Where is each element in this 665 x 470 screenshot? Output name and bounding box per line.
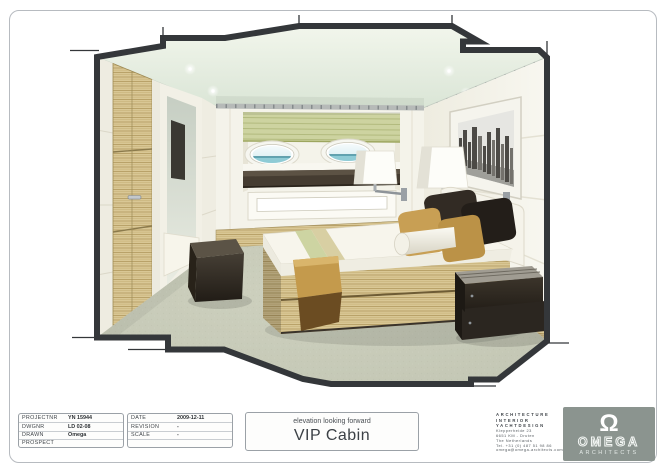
field-label: PROJECTNR xyxy=(22,415,68,421)
logo-subtitle: ARCHITECTS xyxy=(579,450,638,456)
field-label: REVISION xyxy=(131,424,177,430)
drawing-title: VIP Cabin xyxy=(294,427,370,445)
field-value: - xyxy=(177,432,179,438)
firm-line: omega@omega-architects.com xyxy=(496,448,562,453)
field-value: Omega xyxy=(68,432,86,438)
field-label: SCALE xyxy=(131,432,177,438)
table-row xyxy=(128,439,232,447)
drawing-sheet: PROJECTNR YN 15944 DWGNR LD 02-08 DRAWN … xyxy=(0,0,665,470)
lit-niche xyxy=(248,191,396,221)
omega-architects-logo: Ω OMEGA ARCHITECTS xyxy=(563,407,655,461)
table-row: DWGNR LD 02-08 xyxy=(19,422,123,430)
field-value: 2009-12-11 xyxy=(177,415,204,421)
table-row: REVISION - xyxy=(128,422,232,430)
door-handle xyxy=(128,196,141,200)
logo-name: OMEGA xyxy=(578,435,640,449)
table-row: DRAWN Omega xyxy=(19,431,123,439)
field-label: DWGNR xyxy=(22,424,68,430)
tv-panel xyxy=(171,120,185,180)
drawing-title-box: elevation looking forward VIP Cabin xyxy=(245,412,419,451)
table-row: SCALE - xyxy=(128,431,232,439)
vip-cabin-rendering xyxy=(0,0,665,410)
roman-blind xyxy=(243,112,400,142)
drawing-subtitle: elevation looking forward xyxy=(293,418,370,425)
firm-address-block: ARCHITECTURE INTERIOR YACHTDESIGN Kleppe… xyxy=(496,412,562,453)
table-row: DATE 2009-12-11 xyxy=(128,414,232,422)
cabin-door xyxy=(113,64,152,332)
field-value: - xyxy=(177,424,179,430)
table-row: PROJECTNR YN 15944 xyxy=(19,414,123,422)
omega-symbol-icon: Ω xyxy=(599,413,618,435)
field-value: LD 02-08 xyxy=(68,424,90,430)
field-label: DRAWN xyxy=(22,432,68,438)
project-info-table: PROJECTNR YN 15944 DWGNR LD 02-08 DRAWN … xyxy=(18,413,124,448)
date-info-table: DATE 2009-12-11 REVISION - SCALE - xyxy=(127,413,233,448)
nightstand xyxy=(455,266,548,347)
field-value: YN 15944 xyxy=(68,415,92,421)
field-label: DATE xyxy=(131,415,177,421)
table-row: PROSPECT xyxy=(19,439,123,447)
field-label: PROSPECT xyxy=(22,440,68,446)
